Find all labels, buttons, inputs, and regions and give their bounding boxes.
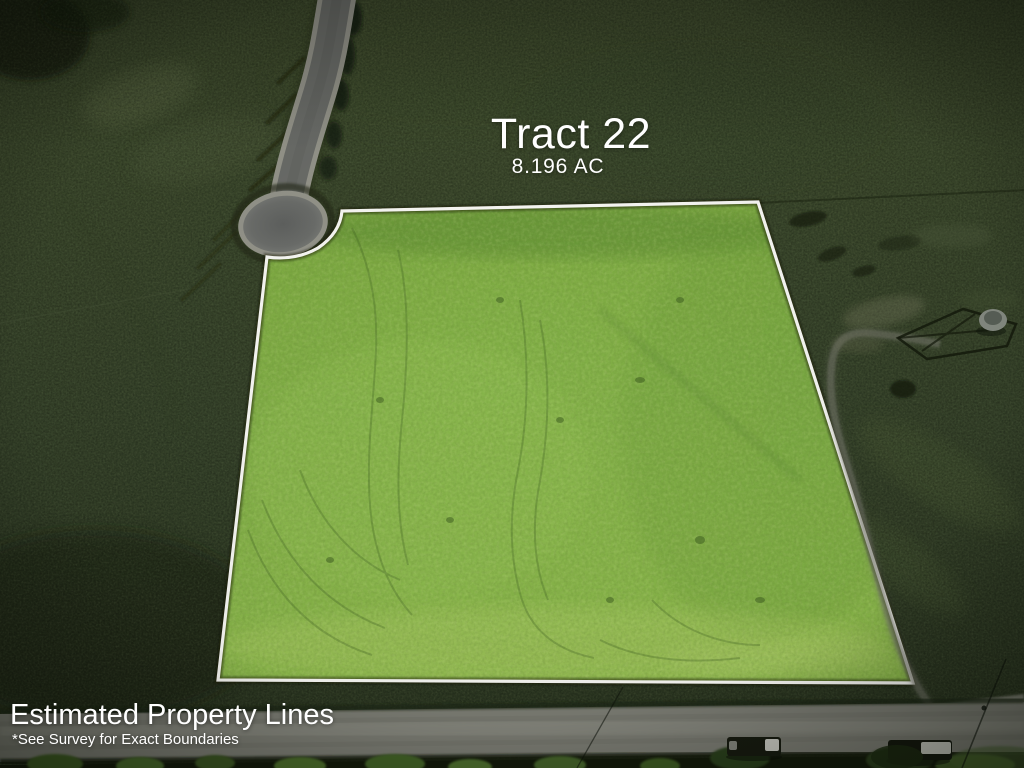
aerial-photo: Tract 22 8.196 AC Estimated Property Lin… [0, 0, 1024, 768]
disclaimer-note: *See Survey for Exact Boundaries [12, 731, 239, 748]
disclaimer-heading: Estimated Property Lines [10, 699, 334, 732]
tract-title: Tract 22 [441, 110, 701, 159]
tract-acreage: 8.196 AC [428, 155, 688, 179]
